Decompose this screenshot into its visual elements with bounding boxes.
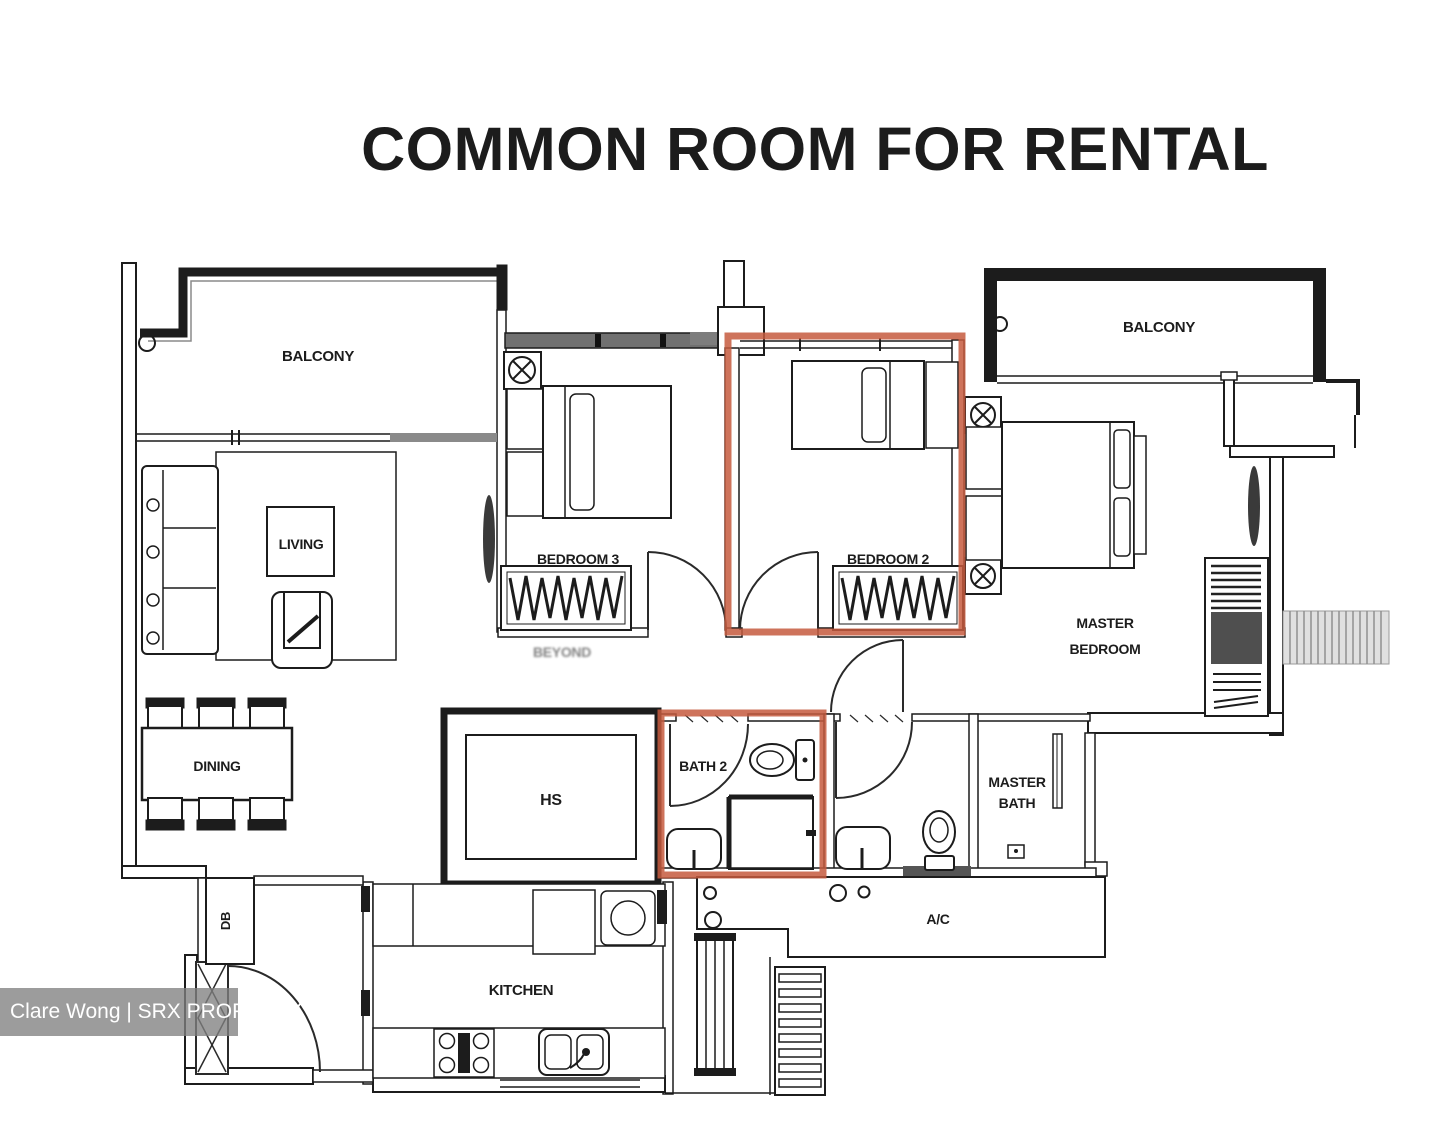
toilet-icon (923, 811, 955, 870)
label-master-bath-2: BATH (999, 795, 1036, 811)
wardrobe-icon (501, 566, 631, 630)
shower-icon (729, 797, 816, 869)
living-room (139, 335, 495, 668)
stove-icon (434, 1029, 494, 1077)
label-master-bath-1: MASTER (988, 774, 1046, 790)
nightstand (507, 452, 544, 516)
floor-drain-icon (1008, 845, 1024, 858)
bed-icon (792, 361, 958, 449)
watermark: Clare Wong | SRX PROPERTY (0, 988, 238, 1036)
window (1053, 734, 1062, 808)
label-balcony-left: BALCONY (282, 348, 354, 365)
bedroom3-door (648, 552, 726, 630)
counter-bottom (373, 1028, 665, 1078)
floorplan-page: COMMON ROOM FOR RENTAL (0, 0, 1440, 1133)
sofa-icon (142, 466, 218, 654)
dining-chairs-bottom (146, 798, 286, 830)
kitchen-sink-icon (539, 1029, 609, 1075)
label-hs: HS (540, 792, 562, 809)
label-master-bedroom-2: BEDROOM (1069, 641, 1140, 657)
dining-area (142, 698, 292, 964)
watermark-text: Clare Wong | SRX PROPERTY (10, 1000, 302, 1023)
label-ghost: BEYOND (533, 644, 591, 660)
wardrobe-icon (1205, 558, 1268, 716)
toilet-icon (750, 740, 814, 780)
sink-icon (836, 827, 890, 869)
kitchen-room (361, 884, 667, 1078)
exhaust-fan-icon (504, 352, 541, 389)
dining-chairs-top (146, 698, 286, 730)
label-kitchen: KITCHEN (489, 982, 554, 999)
ledge-hatch (1283, 611, 1389, 664)
master-bath-door (836, 722, 912, 798)
nightstand (507, 389, 544, 449)
label-ac: A/C (926, 911, 949, 927)
floorplan-drawing: COMMON ROOM FOR RENTAL (0, 0, 1440, 1133)
label-bedroom2: BEDROOM 2 (847, 551, 930, 567)
sink-icon (667, 829, 721, 869)
page-title: COMMON ROOM FOR RENTAL (361, 115, 1269, 183)
label-balcony-right: BALCONY (1123, 319, 1195, 336)
nightstand (966, 427, 1002, 489)
walls (122, 261, 1358, 1095)
wall-panel (483, 495, 495, 583)
bed-icon (543, 386, 671, 518)
wall-panel (1248, 466, 1260, 546)
label-bedroom3: BEDROOM 3 (537, 551, 620, 567)
bedroom3-room (501, 352, 671, 630)
wardrobe-icon (833, 566, 963, 630)
label-living: LIVING (279, 536, 324, 552)
label-dining: DINING (193, 758, 241, 774)
exhaust-fan-icon (965, 558, 1001, 594)
label-db: DB (218, 912, 233, 930)
label-bath2: BATH 2 (679, 758, 727, 774)
appliance (533, 890, 595, 954)
bedroom2-door (740, 552, 818, 630)
bed-icon (1002, 422, 1146, 568)
label-master-bedroom-1: MASTER (1076, 615, 1134, 631)
armchair-icon (272, 592, 332, 668)
master-bedroom-door (831, 640, 903, 712)
nightstand (966, 496, 1002, 560)
